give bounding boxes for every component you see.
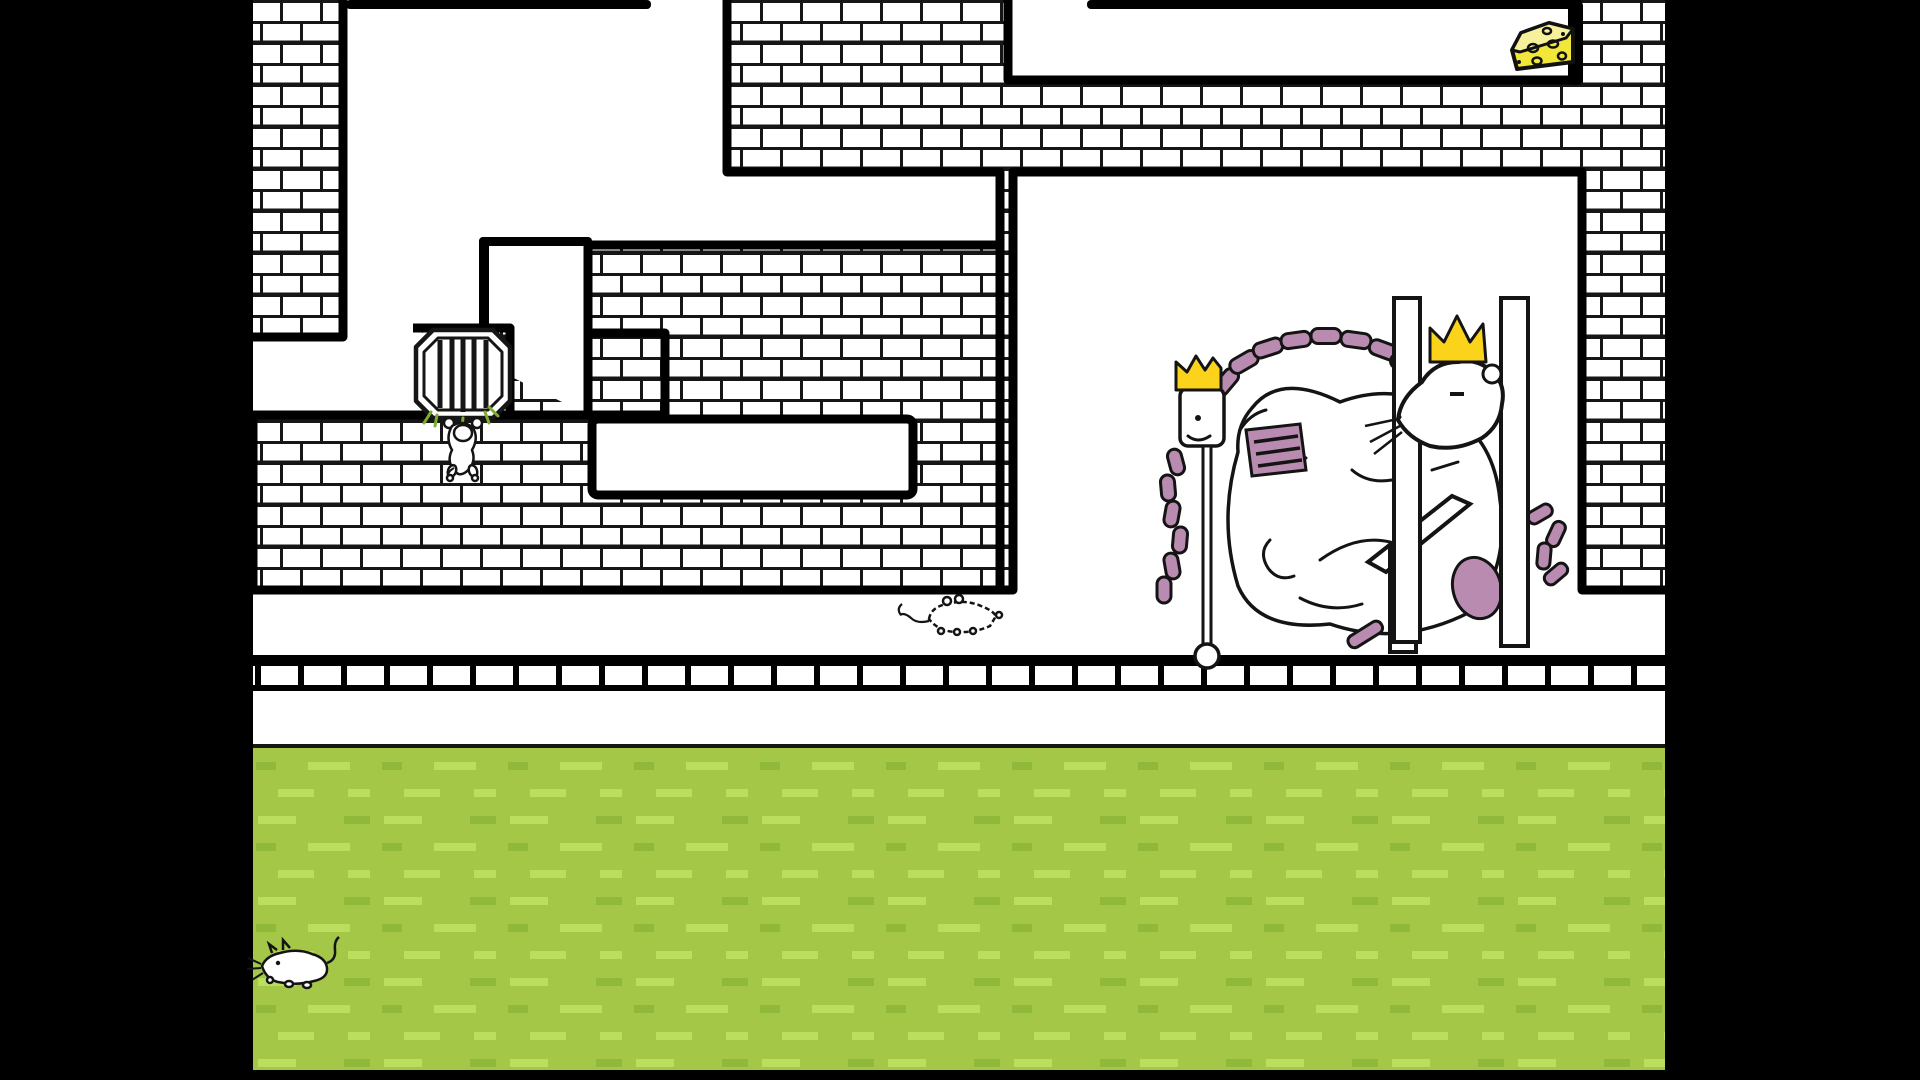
grate-mouse-foot	[472, 475, 478, 481]
grass-mouse-eye	[276, 961, 280, 965]
mid-wall-stub-top	[479, 237, 592, 246]
floor-mouse-foot	[970, 628, 976, 634]
floor-mouse-ear	[943, 597, 951, 605]
grate-mouse-foot	[447, 475, 453, 481]
game-canvas[interactable]	[0, 0, 1920, 1080]
letterbox-left	[0, 0, 253, 1080]
grate-mouse-paw-right	[472, 418, 482, 428]
cheese-speck	[1517, 60, 1521, 64]
figure-head	[1180, 388, 1224, 446]
scepter-staff	[1203, 446, 1211, 646]
grass-field	[253, 748, 1667, 1070]
cheese-speck	[1561, 32, 1565, 36]
ledge-bricks	[253, 666, 1667, 685]
bedpost-left	[1394, 298, 1420, 642]
game-screen	[0, 0, 1920, 1080]
floor-mouse-foot	[938, 628, 944, 634]
figure-eye	[1195, 415, 1201, 421]
dead-end-cell	[592, 419, 913, 495]
maze-wall-left-column	[247, 0, 343, 337]
grass-edge-line	[253, 744, 1667, 748]
letterbox-bottom	[253, 1070, 1665, 1080]
cheese-corridor-top-line	[1087, 0, 1579, 9]
floor-mouse-foot	[954, 629, 960, 635]
vent-grate[interactable]	[416, 330, 510, 427]
letterbox-right	[1665, 0, 1920, 1080]
grass-mouse-foot	[285, 981, 293, 987]
floor-mouse-ear	[955, 595, 963, 603]
floor-mouse-nose	[996, 612, 1002, 618]
scepter-ball	[1195, 644, 1219, 668]
grass-mouse-foot	[303, 982, 311, 988]
bedpost-right	[1501, 298, 1528, 646]
big-rat-ear	[1483, 365, 1501, 383]
grass-mouse-paw	[267, 977, 273, 983]
grate-mouse-head	[454, 425, 472, 441]
top-wall-line	[346, 0, 651, 9]
mid-wall-stub	[479, 237, 489, 335]
